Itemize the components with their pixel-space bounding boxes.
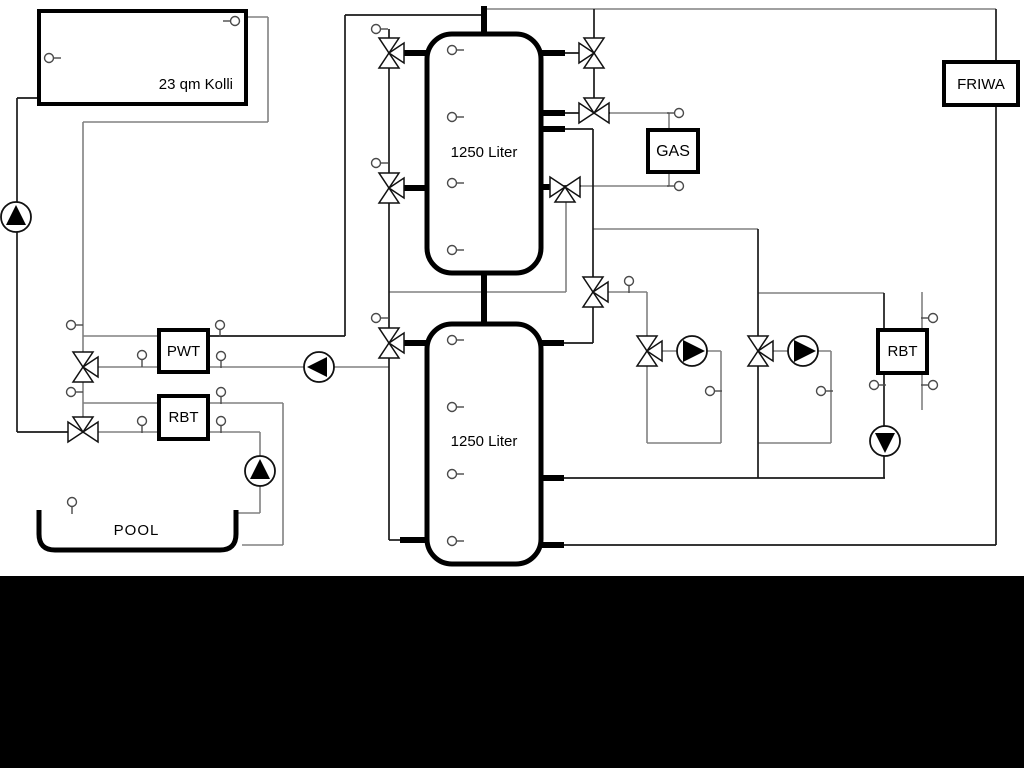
- pump-icon: [245, 456, 275, 486]
- temperature-sensor-icon: [217, 417, 226, 434]
- pump-icon: [870, 426, 900, 456]
- pump-icon: [677, 336, 707, 366]
- tank-port: [481, 6, 487, 36]
- tank-port: [402, 50, 427, 56]
- three-way-valve-icon: [379, 328, 404, 358]
- temperature-sensor-icon: [372, 314, 389, 323]
- pump-icon: [304, 352, 334, 382]
- tank-port: [541, 110, 565, 116]
- rbt-heating-label: RBT: [876, 344, 929, 359]
- three-way-valve-icon: [579, 38, 604, 68]
- tank-port: [541, 126, 565, 132]
- hydraulic-schematic: 23 qm Kolli 1250 Liter 1250 Liter PWT RB…: [0, 0, 1024, 768]
- tank-port: [481, 273, 487, 324]
- temperature-sensor-icon: [625, 277, 634, 294]
- three-way-valve-icon: [583, 277, 608, 307]
- tank-port: [400, 537, 427, 543]
- tank-port: [541, 50, 565, 56]
- three-way-valve-icon: [73, 352, 98, 382]
- lower-tank-label: 1250 Liter: [425, 434, 543, 449]
- gas-label: GAS: [646, 144, 700, 160]
- temperature-sensor-icon: [68, 498, 77, 515]
- pool-label: POOL: [37, 523, 236, 538]
- temperature-sensor-icon: [372, 159, 389, 168]
- three-way-valve-icon: [379, 173, 404, 203]
- collector-label: 23 qm Kolli: [37, 77, 233, 92]
- upper-tank-label: 1250 Liter: [425, 145, 543, 160]
- three-way-valve-icon: [637, 336, 662, 366]
- temperature-sensor-icon: [67, 388, 84, 397]
- tank-port: [541, 542, 564, 548]
- temperature-sensor-icon: [138, 417, 147, 434]
- pump-icon: [1, 202, 31, 232]
- tank-port: [541, 475, 564, 481]
- three-way-valve-icon: [748, 336, 773, 366]
- temperature-sensor-icon: [217, 388, 226, 405]
- temperature-sensor-icon: [216, 321, 225, 338]
- three-way-valve-icon: [68, 417, 98, 442]
- rbt-pool-label: RBT: [157, 410, 210, 425]
- temperature-sensor-icon: [921, 381, 938, 390]
- three-way-valve-icon: [550, 177, 580, 202]
- letterbox-band: [0, 576, 1024, 768]
- tank-port: [541, 340, 564, 346]
- pwt-label: PWT: [157, 344, 210, 359]
- friwa-label: FRIWA: [942, 77, 1020, 92]
- temperature-sensor-icon: [67, 321, 84, 330]
- temperature-sensor-icon: [372, 25, 389, 34]
- temperature-sensor-icon: [706, 387, 723, 396]
- tank-port: [402, 340, 427, 346]
- three-way-valve-icon: [579, 98, 609, 123]
- temperature-sensor-icon: [138, 351, 147, 368]
- three-way-valve-icon: [379, 38, 404, 68]
- tank-port: [402, 185, 427, 191]
- pump-icon: [788, 336, 818, 366]
- temperature-sensor-icon: [217, 352, 226, 369]
- temperature-sensor-icon: [921, 314, 938, 323]
